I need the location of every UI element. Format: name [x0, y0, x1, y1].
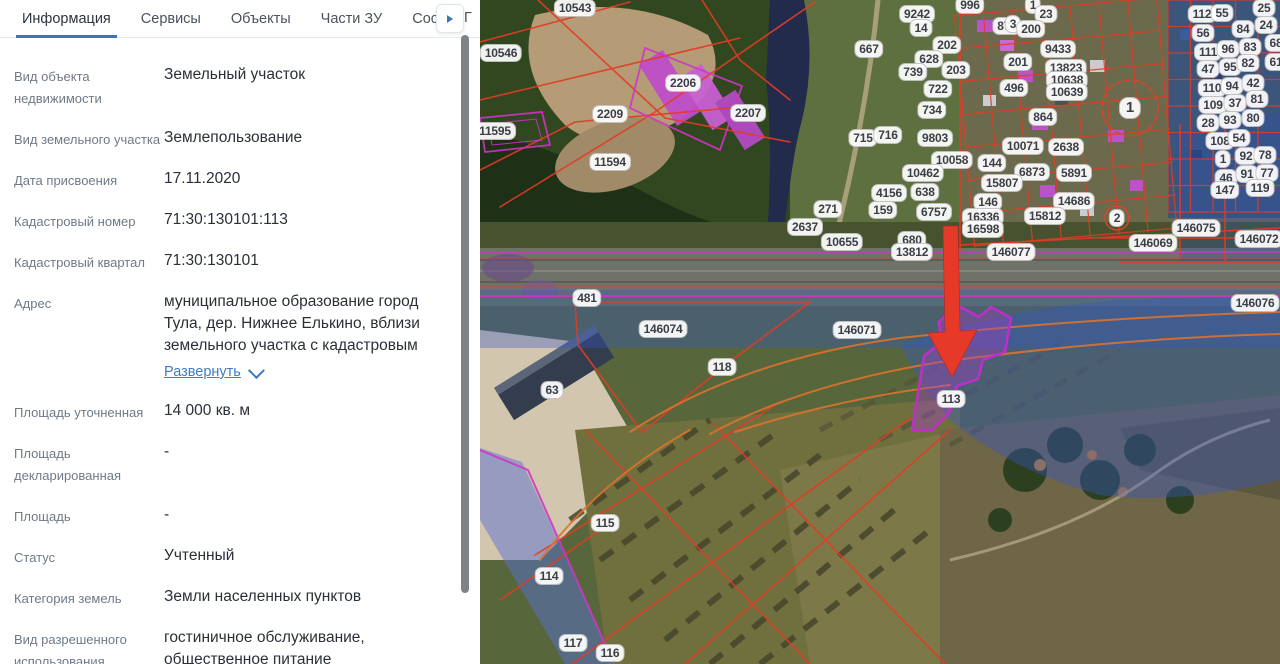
parcel-label: 63 — [541, 381, 564, 399]
parcel-label: 114 — [535, 567, 564, 585]
field-row: Кадастровый номер71:30:130101:113 — [14, 209, 450, 233]
field-label: Площадь — [14, 504, 164, 528]
parcel-label: 10071 — [1002, 137, 1044, 155]
parcel-label: 2206 — [665, 74, 701, 92]
tab-bar: ИнформацияСервисыОбъектыЧасти ЗУСоста Г — [0, 0, 480, 38]
parcel-label: 14 — [910, 19, 933, 37]
parcel-label: 6757 — [916, 203, 952, 221]
parcel-label: 4156 — [871, 184, 907, 202]
field-label: Кадастровый номер — [14, 209, 164, 233]
parcel-label: 734 — [917, 101, 946, 119]
field-value: муниципальное образование город Тула, де… — [164, 291, 450, 383]
parcel-label: 159 — [868, 201, 897, 219]
parcel-label: 271 — [813, 200, 842, 218]
field-row: Вид объекта недвижимостиЗемельный участо… — [14, 64, 450, 110]
field-value: 14 000 кв. м — [164, 400, 450, 424]
parcel-label: 146071 — [833, 321, 882, 339]
field-row: Вид разрешенного использованиягостинично… — [14, 627, 450, 664]
parcel-label: 28 — [1197, 114, 1220, 132]
field-label: Вид объекта недвижимости — [14, 64, 164, 110]
parcel-label: 146074 — [639, 320, 688, 338]
field-value: Земельный участок — [164, 64, 450, 110]
field-label: Площадь уточненная — [14, 400, 164, 424]
tab-2[interactable]: Сервисы — [141, 1, 201, 37]
parcel-label: 1 — [1119, 97, 1141, 119]
parcel-label: 82 — [1237, 54, 1260, 72]
field-row: Площадь декларированная- — [14, 441, 450, 487]
parcel-label: 1 — [1215, 150, 1231, 168]
parcel-label: 118 — [708, 358, 737, 376]
field-value: 71:30:130101:113 — [164, 209, 450, 233]
parcel-label: 638 — [910, 183, 939, 201]
field-value: гостиничное обслуживание, общественное п… — [164, 627, 450, 664]
field-row: Категория земельЗемли населенных пунктов — [14, 586, 450, 610]
parcel-label: 24 — [1255, 16, 1278, 34]
parcel-label: 115 — [591, 514, 620, 532]
tab-4[interactable]: Части ЗУ — [321, 1, 383, 37]
parcel-label: 80 — [1242, 109, 1265, 127]
parcel-label: 56 — [1192, 24, 1215, 42]
parcel-label: 2 — [1109, 209, 1125, 227]
app-window: ИнформацияСервисыОбъектыЧасти ЗУСоста Г … — [0, 0, 1280, 664]
parcel-label: 739 — [898, 63, 927, 81]
field-value: Земли населенных пунктов — [164, 586, 450, 610]
field-label: Дата присвоения — [14, 168, 164, 192]
parcel-label: 16598 — [962, 220, 1004, 238]
panel-scrollbar[interactable] — [461, 35, 469, 593]
tab-1[interactable]: Информация — [22, 1, 111, 37]
parcel-label: 25 — [1253, 0, 1276, 17]
field-row: Вид земельного участкаЗемлепользование — [14, 127, 450, 151]
map-labels: 1054310546220622091159511594220766792421… — [480, 0, 1280, 664]
parcel-label: 13812 — [891, 243, 933, 261]
field-label: Адрес — [14, 291, 164, 383]
parcel-label: 200 — [1016, 20, 1045, 38]
field-label: Статус — [14, 545, 164, 569]
field-value: - — [164, 504, 450, 528]
parcel-label: 61 — [1265, 53, 1280, 71]
parcel-label: 203 — [941, 61, 970, 79]
field-value: Учтенный — [164, 545, 450, 569]
field-value: 71:30:130101 — [164, 250, 450, 274]
parcel-label: 78 — [1254, 146, 1277, 164]
parcel-label: 113 — [937, 390, 966, 408]
parcel-label: 9433 — [1040, 40, 1076, 58]
parcel-label: 481 — [572, 289, 601, 307]
parcel-label: 11595 — [480, 122, 516, 140]
parcel-info-panel: ИнформацияСервисыОбъектыЧасти ЗУСоста Г … — [0, 0, 480, 664]
parcel-label: 5891 — [1056, 164, 1092, 182]
field-value: 17.11.2020 — [164, 168, 450, 192]
parcel-label: 146077 — [987, 243, 1036, 261]
parcel-label: 147 — [1210, 181, 1239, 199]
parcel-label: 667 — [854, 40, 883, 58]
parcel-label: 10543 — [554, 0, 596, 17]
field-row: Кадастровый квартал71:30:130101 — [14, 250, 450, 274]
parcel-label: 84 — [1232, 20, 1255, 38]
parcel-label: 55 — [1211, 4, 1234, 22]
parcel-label: 146075 — [1172, 219, 1221, 237]
parcel-label: 146069 — [1129, 234, 1178, 252]
field-row: Адресмуниципальное образование город Тул… — [14, 291, 450, 383]
parcel-label: 722 — [923, 80, 952, 98]
parcel-label: 496 — [999, 79, 1028, 97]
parcel-label: 81 — [1246, 90, 1269, 108]
parcel-label: 15807 — [981, 174, 1023, 192]
parcel-label: 47 — [1197, 60, 1220, 78]
parcel-label: 10655 — [821, 233, 863, 251]
tab-scroll-right-button[interactable] — [436, 4, 464, 33]
field-value: Землепользование — [164, 127, 450, 151]
tab-partial-label: Г — [464, 0, 472, 36]
field-row: СтатусУчтенный — [14, 545, 450, 569]
parcel-label: 864 — [1028, 108, 1057, 126]
tab-3[interactable]: Объекты — [231, 1, 291, 37]
parcel-label: 2638 — [1048, 138, 1084, 156]
field-row: Дата присвоения17.11.2020 — [14, 168, 450, 192]
parcel-label: 93 — [1219, 111, 1242, 129]
parcel-label: 54 — [1228, 129, 1251, 147]
parcel-label: 68 — [1265, 34, 1280, 52]
field-label: Кадастровый квартал — [14, 250, 164, 274]
field-row: Площадь- — [14, 504, 450, 528]
parcel-label: 2207 — [730, 104, 766, 122]
field-label: Вид земельного участка — [14, 127, 164, 151]
expand-address-link[interactable]: Развернуть — [164, 361, 241, 383]
arrow-right-icon — [447, 15, 453, 23]
parcel-label: 10462 — [902, 164, 944, 182]
field-label: Площадь декларированная — [14, 441, 164, 487]
tab-list: ИнформацияСервисыОбъектыЧасти ЗУСоста — [22, 1, 453, 37]
parcel-label: 10639 — [1046, 83, 1088, 101]
field-row: Площадь уточненная14 000 кв. м — [14, 400, 450, 424]
parcel-label: 10546 — [480, 44, 522, 62]
parcel-label: 144 — [977, 154, 1006, 172]
parcel-label: 146076 — [1231, 294, 1280, 312]
parcel-label: 996 — [955, 0, 984, 14]
field-list: Вид объекта недвижимостиЗемельный участо… — [0, 38, 480, 664]
parcel-label: 146072 — [1235, 230, 1280, 248]
parcel-label: 2209 — [592, 105, 628, 123]
field-label: Вид разрешенного использования — [14, 627, 164, 664]
chevron-down-icon — [248, 362, 265, 379]
parcel-label: 716 — [873, 126, 902, 144]
parcel-label: 11594 — [589, 153, 631, 171]
parcel-label: 201 — [1003, 53, 1032, 71]
parcel-label: 116 — [596, 644, 625, 662]
parcel-label: 15812 — [1024, 207, 1066, 225]
field-value: - — [164, 441, 450, 487]
parcel-label: 2637 — [787, 218, 823, 236]
field-label: Категория земель — [14, 586, 164, 610]
parcel-label: 37 — [1224, 94, 1247, 112]
parcel-label: 117 — [559, 634, 588, 652]
parcel-label: 119 — [1246, 179, 1275, 197]
parcel-label: 96 — [1217, 40, 1240, 58]
parcel-label: 94 — [1221, 77, 1244, 95]
parcel-label: 9803 — [917, 129, 953, 147]
map-view[interactable]: 1054310546220622091159511594220766792421… — [480, 0, 1280, 664]
